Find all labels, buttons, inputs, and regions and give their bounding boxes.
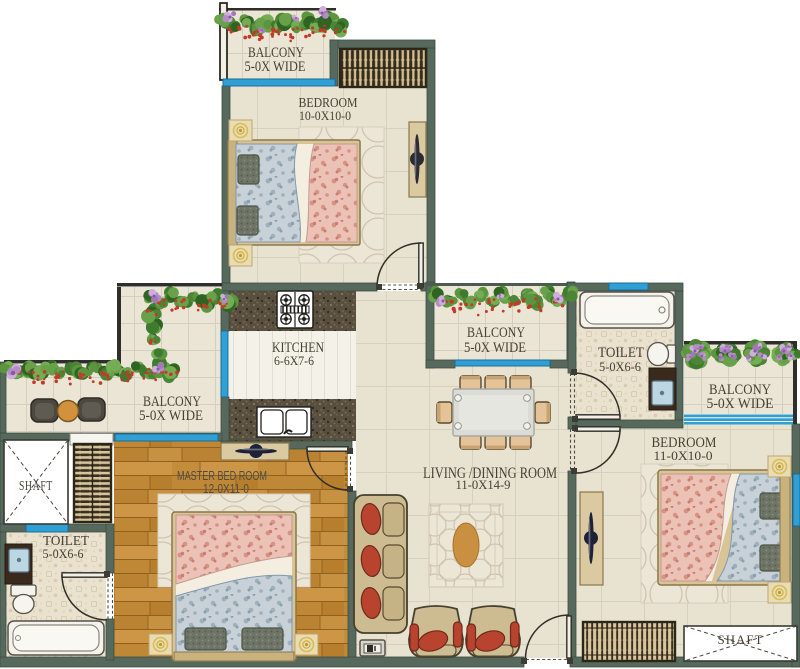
svg-text:10-0X10-0: 10-0X10-0 <box>299 108 351 123</box>
svg-text:5-0X WIDE: 5-0X WIDE <box>707 396 774 412</box>
svg-text:11-0X10-0: 11-0X10-0 <box>654 448 713 463</box>
svg-text:5-0X WIDE: 5-0X WIDE <box>464 340 526 356</box>
svg-text:MASTER BED ROOM: MASTER BED ROOM <box>177 469 267 483</box>
svg-text:5-0X6-6: 5-0X6-6 <box>599 359 641 374</box>
svg-text:5-0X WIDE: 5-0X WIDE <box>139 408 203 424</box>
svg-text:6-6X7-6: 6-6X7-6 <box>274 353 314 368</box>
svg-text:11-0X14-9: 11-0X14-9 <box>456 477 511 492</box>
svg-text:BALCONY: BALCONY <box>467 325 525 341</box>
svg-text:SHAFT: SHAFT <box>19 479 53 494</box>
svg-text:5-0X WIDE: 5-0X WIDE <box>245 59 306 75</box>
svg-text:5-0X6-6: 5-0X6-6 <box>43 546 84 561</box>
svg-text:SHAFT: SHAFT <box>718 632 764 647</box>
